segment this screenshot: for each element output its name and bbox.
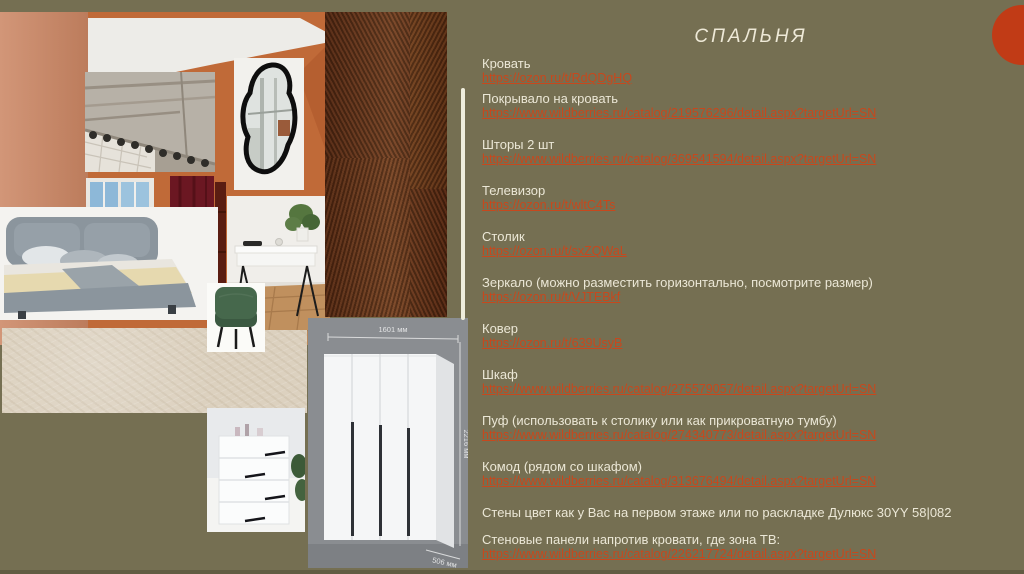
list-item-10: Комод (рядом со шкафом) https://www.wild… xyxy=(482,460,1020,488)
item-link[interactable]: https://www.wildberries.ru/catalog/36954… xyxy=(482,152,1020,166)
item-link[interactable]: https://www.wildberries.ru/catalog/27557… xyxy=(482,382,1020,396)
item-label: Зеркало (можно разместить горизонтально,… xyxy=(482,276,1020,290)
wood-panel-texture xyxy=(325,12,447,317)
item-label: Стеновые панели напротив кровати, где зо… xyxy=(482,533,1020,547)
list-item-4: Телевизор https://ozon.ru/t/wltC4Ts xyxy=(482,184,1020,212)
item-link[interactable]: https://ozon.ru/t/VJTEBkf xyxy=(482,290,1020,304)
item-label: Комод (рядом со шкафом) xyxy=(482,460,1020,474)
item-link[interactable]: https://ozon.ru/t/sxZQWaL xyxy=(482,244,1020,258)
content-column: СПАЛЬНЯ Кровать https://ozon.ru/t/RdQDgH… xyxy=(482,26,1020,574)
bed-photo xyxy=(0,207,218,320)
item-label: Пуф (использовать к столику или как прик… xyxy=(482,414,1020,428)
wardrobe-render: 1601 мм 2216 мм 506 мм xyxy=(308,318,468,568)
item-list: Кровать https://ozon.ru/t/RdQDgHQ Покрыв… xyxy=(482,57,1020,561)
item-link[interactable]: https://ozon.ru/t/RdQDgHQ xyxy=(482,71,1020,85)
item-label: Столик xyxy=(482,230,1020,244)
item-label: Телевизор xyxy=(482,184,1020,198)
bottom-edge xyxy=(0,570,1024,574)
item-link[interactable]: https://www.wildberries.ru/catalog/31367… xyxy=(482,474,1020,488)
list-item-12: Стеновые панели напротив кровати, где зо… xyxy=(482,533,1020,561)
list-item-2: Покрывало на кровать https://www.wildber… xyxy=(482,92,1020,120)
item-label: Стены цвет как у Вас на первом этаже или… xyxy=(482,506,1020,520)
item-label: Шкаф xyxy=(482,368,1020,382)
item-link[interactable]: https://www.wildberries.ru/catalog/22621… xyxy=(482,547,1020,561)
wardrobe-height-label: 2216 мм xyxy=(462,429,468,458)
chest-of-drawers-photo xyxy=(207,408,305,532)
slide-title: СПАЛЬНЯ xyxy=(482,26,1020,48)
list-item-11: Стены цвет как у Вас на первом этаже или… xyxy=(482,506,1020,520)
slide: 1601 мм 2216 мм 506 мм СПАЛЬНЯ Кровать h… xyxy=(0,0,1024,574)
list-item-9: Пуф (использовать к столику или как прик… xyxy=(482,414,1020,442)
item-label: Кровать xyxy=(482,57,1020,71)
divider-line xyxy=(461,88,465,320)
green-pouf-photo xyxy=(207,283,265,352)
list-item-1: Кровать https://ozon.ru/t/RdQDgHQ xyxy=(482,57,1020,85)
item-link[interactable]: https://ozon.ru/t/639UsyB xyxy=(482,336,1020,350)
list-item-3: Шторы 2 шт https://www.wildberries.ru/ca… xyxy=(482,138,1020,166)
list-item-5: Столик https://ozon.ru/t/sxZQWaL xyxy=(482,230,1020,258)
list-item-6: Зеркало (можно разместить горизонтально,… xyxy=(482,276,1020,304)
item-label: Ковер xyxy=(482,322,1020,336)
list-item-8: Шкаф https://www.wildberries.ru/catalog/… xyxy=(482,368,1020,396)
organic-mirror-photo xyxy=(234,58,304,190)
roman-blind-photo xyxy=(85,72,215,172)
item-label: Покрывало на кровать xyxy=(482,92,1020,106)
wardrobe-width-label: 1601 мм xyxy=(378,325,407,334)
item-link[interactable]: https://www.wildberries.ru/catalog/27434… xyxy=(482,428,1020,442)
item-label: Шторы 2 шт xyxy=(482,138,1020,152)
item-link[interactable]: https://ozon.ru/t/wltC4Ts xyxy=(482,198,1020,212)
item-link[interactable]: https://www.wildberries.ru/catalog/21957… xyxy=(482,106,1020,120)
list-item-7: Ковер https://ozon.ru/t/639UsyB xyxy=(482,322,1020,350)
